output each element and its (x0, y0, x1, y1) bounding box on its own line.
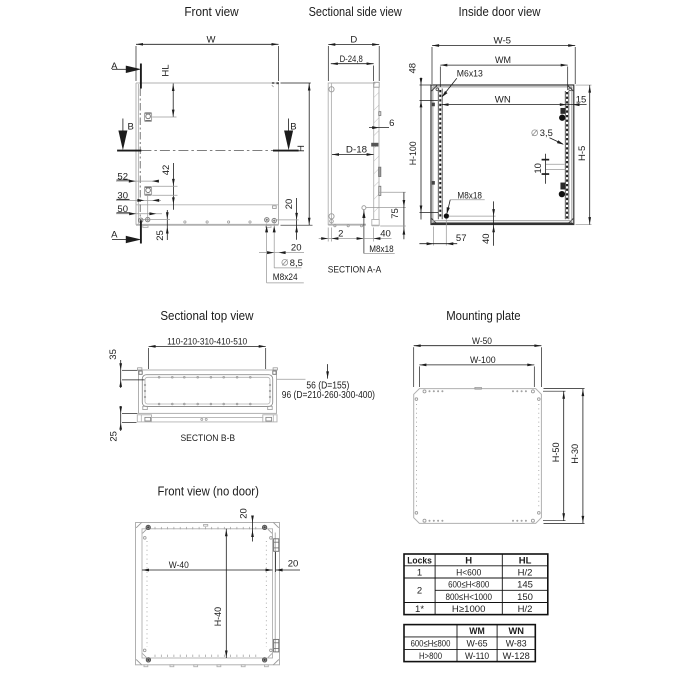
svg-text:20: 20 (284, 199, 295, 210)
svg-text:600≤H<800: 600≤H<800 (448, 580, 489, 591)
svg-text:145: 145 (517, 580, 533, 591)
svg-text:SECTION A-A: SECTION A-A (328, 264, 382, 275)
svg-text:H: H (296, 145, 307, 152)
svg-text:A: A (111, 229, 118, 240)
svg-text:H<600: H<600 (456, 567, 481, 578)
svg-text:H≥1000: H≥1000 (452, 604, 486, 615)
svg-text:HL: HL (519, 555, 532, 566)
svg-text:H-40: H-40 (213, 607, 224, 626)
svg-text:HL: HL (160, 64, 171, 76)
svg-text:W-83: W-83 (506, 639, 527, 650)
svg-text:W-128: W-128 (503, 651, 530, 662)
svg-text:3,5: 3,5 (540, 128, 553, 139)
svg-text:110-210-310-410-510: 110-210-310-410-510 (167, 337, 247, 348)
svg-text:Front view (no door): Front view (no door) (158, 484, 259, 499)
svg-text:D-18: D-18 (346, 145, 367, 156)
svg-text:20: 20 (288, 558, 299, 569)
svg-text:40: 40 (380, 228, 391, 239)
svg-text:Locks: Locks (407, 555, 432, 566)
svg-text:H-30: H-30 (570, 444, 581, 464)
svg-text:W-100: W-100 (470, 355, 496, 366)
svg-text:W-5: W-5 (494, 35, 512, 46)
svg-text:30: 30 (117, 191, 128, 202)
svg-text:B: B (128, 121, 134, 132)
svg-text:2: 2 (338, 228, 343, 239)
svg-text:WN: WN (508, 626, 524, 637)
svg-text:2: 2 (417, 586, 422, 597)
svg-text:M6x13: M6x13 (457, 69, 483, 80)
svg-text:W-65: W-65 (467, 639, 488, 650)
svg-text:35: 35 (108, 349, 119, 360)
svg-text:6: 6 (389, 118, 394, 129)
svg-text:57: 57 (456, 233, 467, 244)
svg-text:W: W (207, 34, 216, 45)
svg-text:H>800: H>800 (419, 651, 442, 662)
svg-text:1*: 1* (415, 604, 424, 615)
svg-text:Sectional top view: Sectional top view (160, 308, 254, 323)
svg-text:H/2: H/2 (518, 604, 533, 615)
svg-text:Front view: Front view (184, 4, 239, 19)
svg-text:15: 15 (576, 94, 587, 105)
svg-text:600≤H≤800: 600≤H≤800 (411, 639, 451, 650)
svg-text:H-100: H-100 (408, 141, 419, 165)
svg-text:D: D (350, 35, 357, 46)
svg-text:20: 20 (291, 243, 302, 254)
svg-text:42: 42 (161, 165, 172, 176)
svg-text:800≤H<1000: 800≤H<1000 (445, 592, 492, 603)
svg-text:H-5: H-5 (577, 146, 588, 161)
svg-text:25: 25 (155, 230, 166, 241)
svg-text:W-50: W-50 (472, 336, 492, 347)
svg-text:20: 20 (238, 508, 249, 519)
svg-text:52: 52 (117, 171, 128, 182)
svg-text:H: H (465, 555, 472, 566)
svg-text:W-110: W-110 (465, 651, 489, 662)
svg-text:H/2: H/2 (518, 567, 533, 578)
svg-text:WM: WM (469, 626, 485, 637)
svg-text:W-40: W-40 (169, 560, 189, 571)
svg-text:D-24,8: D-24,8 (340, 54, 363, 65)
svg-text:WN: WN (495, 95, 511, 106)
svg-text:150: 150 (517, 592, 533, 603)
svg-text:Inside door view: Inside door view (459, 4, 542, 19)
svg-text:8,5: 8,5 (290, 258, 303, 269)
svg-text:M8x24: M8x24 (273, 272, 298, 283)
svg-text:75: 75 (390, 208, 401, 219)
svg-text:40: 40 (481, 233, 492, 244)
svg-text:48: 48 (407, 63, 418, 74)
svg-text:H-50: H-50 (551, 442, 562, 462)
svg-text:25: 25 (108, 431, 119, 442)
svg-text:96 (D=210-260-300-400): 96 (D=210-260-300-400) (282, 390, 375, 401)
svg-text:SECTION B-B: SECTION B-B (180, 433, 235, 444)
svg-text:Mounting plate: Mounting plate (446, 308, 520, 323)
svg-text:Sectional side view: Sectional side view (309, 4, 403, 19)
svg-text:10: 10 (533, 163, 544, 174)
svg-text:1: 1 (417, 567, 422, 578)
svg-text:B: B (290, 121, 296, 132)
svg-text:50: 50 (117, 204, 128, 215)
svg-text:WM: WM (495, 55, 511, 66)
svg-text:A: A (111, 61, 118, 72)
